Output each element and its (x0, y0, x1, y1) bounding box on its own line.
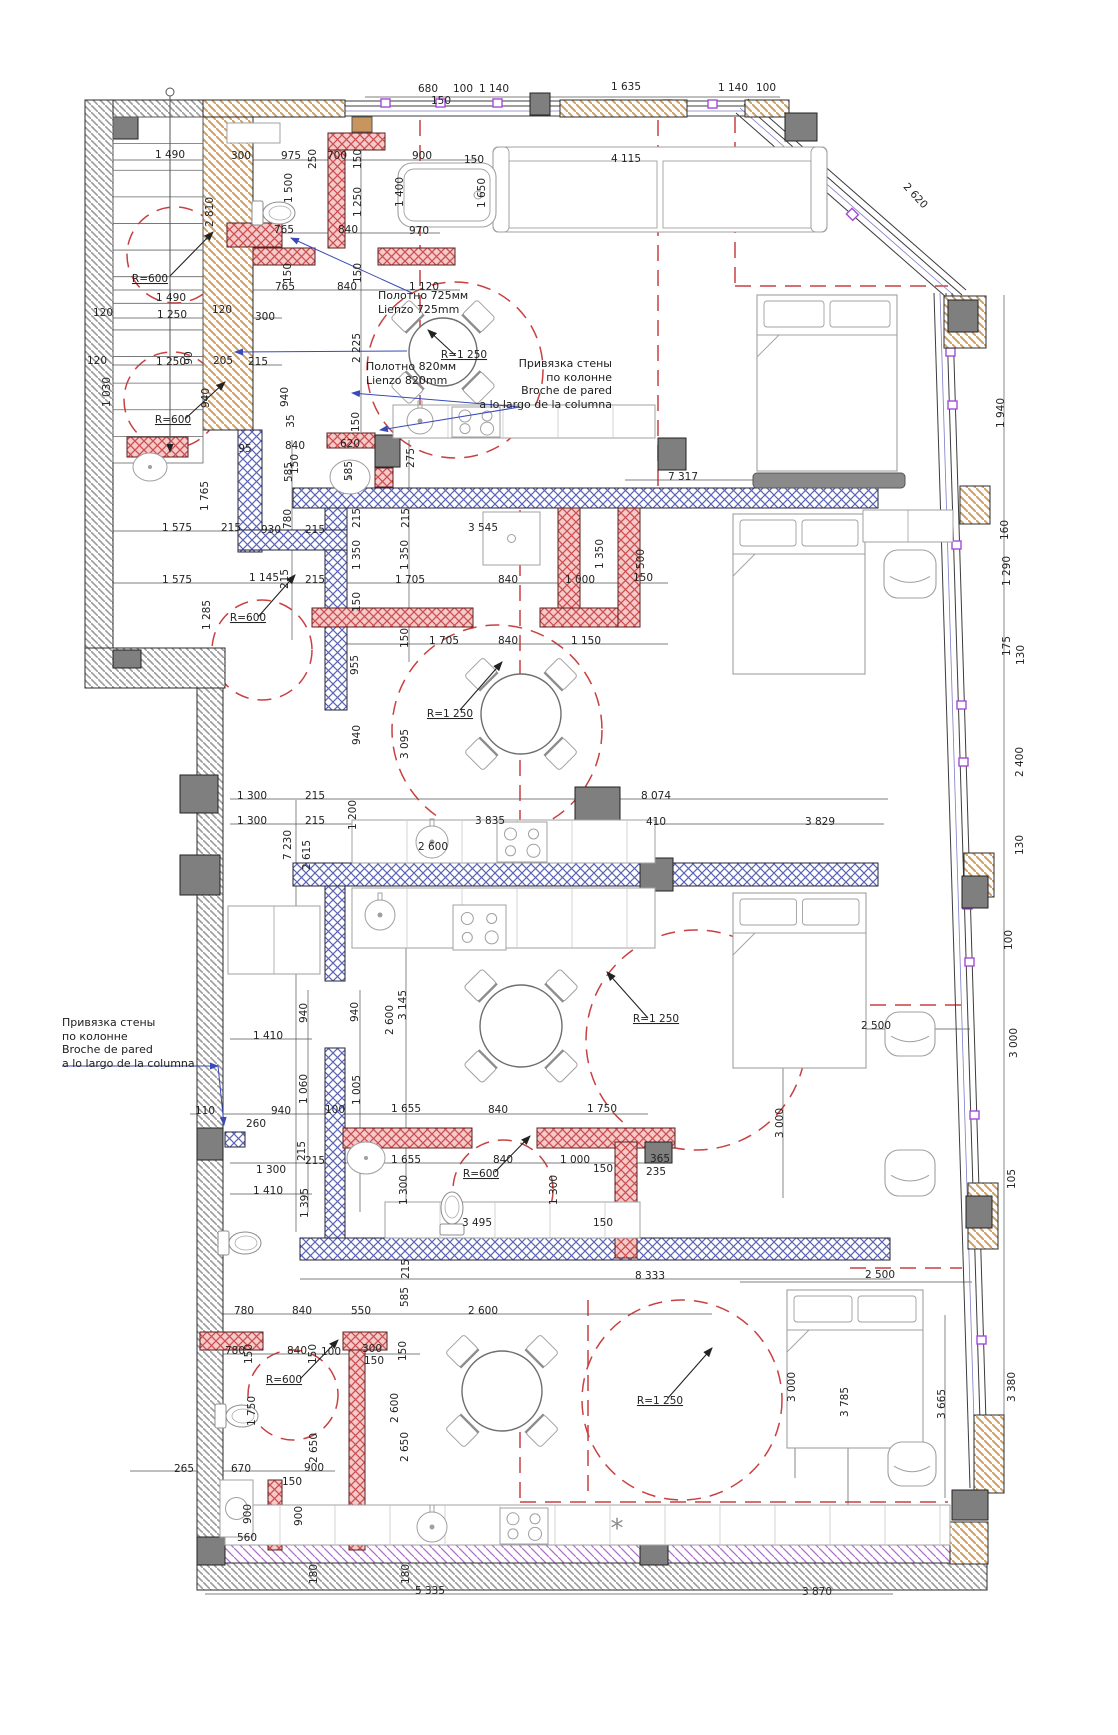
dim-label: 215 (400, 1259, 412, 1279)
dim-label: 3 000 (786, 1372, 798, 1402)
dim-label: 180 (308, 1564, 320, 1584)
dim-label: 160 (999, 520, 1011, 540)
wall-partition-existing (293, 488, 878, 508)
dining-table-icon (445, 1334, 558, 1447)
window-frame-tick (381, 99, 390, 107)
dim-label: 300 (362, 1343, 382, 1355)
dim-label: 940 (200, 388, 212, 408)
dim-label: 1 490 (156, 292, 186, 304)
dim-label: 2 600 (468, 1305, 498, 1317)
wall-masonry (560, 100, 687, 117)
dim-label: 1 250 (157, 309, 187, 321)
dim-label: 250 (307, 149, 319, 169)
wall-masonry (960, 486, 990, 524)
dim-label: 1 635 (611, 81, 641, 93)
dim-label: 150 (282, 263, 294, 283)
dim-label: 1 005 (351, 1075, 363, 1105)
window-frame-tick (965, 958, 974, 966)
dim-label: 1 705 (395, 574, 425, 586)
dim-label: 1 410 (253, 1185, 283, 1197)
radius-arrow (668, 1348, 712, 1398)
radius-label: R=1 250 (633, 1013, 679, 1025)
structural-column (530, 93, 550, 115)
dim-label: 150 (352, 149, 364, 169)
wall-partition-new (312, 608, 473, 627)
annotation-ru: по колонне (442, 371, 612, 385)
dresser-icon (863, 510, 953, 542)
sofa-icon (493, 147, 827, 232)
dim-label: 1 000 (560, 1154, 590, 1166)
turning-radius-circle (248, 1350, 338, 1440)
dim-label: 1 765 (199, 481, 211, 511)
dim-label: 215 (305, 574, 325, 586)
structural-column (966, 1196, 992, 1228)
window-frame-tick (946, 348, 955, 356)
dim-label: 180 (400, 1564, 412, 1584)
dim-label: 215 (305, 524, 325, 536)
dim-label: 150 (431, 95, 451, 107)
asterisk-mark: * (611, 1514, 624, 1544)
dim-label: 300 (231, 150, 251, 162)
dim-label: 2 600 (384, 1005, 396, 1035)
structural-column (180, 855, 220, 895)
window-frame-tick (959, 758, 968, 766)
dim-label: 840 (285, 440, 305, 452)
annotation-wall-tie-top: Привязка стены по колонне Broche de pare… (442, 357, 612, 411)
dim-label: 100 (453, 83, 473, 95)
wall-partition-new (378, 248, 455, 265)
dim-label: 1 140 (718, 82, 748, 94)
dim-label: 215 (221, 522, 241, 534)
dim-label: 1 395 (299, 1188, 311, 1218)
annotation-canvas-725: Полотно 725мм Lienzo 725mm (378, 289, 468, 316)
dim-label: 150 (352, 263, 364, 283)
dim-label: 3 495 (462, 1217, 492, 1229)
dim-label: 1 030 (101, 377, 113, 407)
dim-label: 150 (351, 592, 363, 612)
dim-label: 1 300 (237, 815, 267, 827)
dim-label: 670 (231, 1463, 251, 1475)
dim-label: 1 250 (352, 187, 364, 217)
floor-plan-canvas: 6801501001 1401 6351 1401002 6201 490300… (0, 0, 1118, 1735)
dim-label: 3 145 (397, 990, 409, 1020)
radius-label: R=600 (230, 612, 266, 624)
annotation-es: Lienzo 725mm (378, 303, 468, 317)
dim-label: 1 350 (351, 540, 363, 570)
structural-column (952, 1490, 988, 1520)
dim-label: 1 940 (995, 398, 1007, 428)
dim-label: 1 400 (394, 177, 406, 207)
stove-icon (497, 822, 547, 862)
dim-label: 840 (493, 1154, 513, 1166)
dim-label: 215 (400, 508, 412, 528)
dim-label: 1 655 (391, 1103, 421, 1115)
dim-label: 150 (633, 572, 653, 584)
dim-label: 3 000 (1008, 1028, 1020, 1058)
dim-label: 940 (271, 1105, 291, 1117)
dim-label: 150 (364, 1355, 384, 1367)
dim-label: 1 750 (587, 1103, 617, 1115)
dim-label: 620 (340, 438, 360, 450)
structural-column (658, 438, 686, 470)
dim-label: 900 (242, 1504, 254, 1524)
dim-label: 150 (397, 1341, 409, 1361)
dim-label: 1 350 (399, 540, 411, 570)
wall-partition-new (253, 248, 315, 265)
dim-label: 2 810 (204, 197, 216, 227)
dim-label: 4 115 (611, 153, 641, 165)
dim-label: 585 (399, 1287, 411, 1307)
dim-label: 150 (593, 1163, 613, 1175)
dim-label: 940 (298, 1003, 310, 1023)
dim-label: 1 290 (1001, 556, 1013, 586)
dim-label: 1 575 (162, 522, 192, 534)
structural-column (197, 1128, 223, 1160)
dim-label: 120 (93, 307, 113, 319)
furniture-layer (133, 117, 953, 1545)
wall-masonry (203, 100, 345, 117)
dim-label: 1 300 (256, 1164, 286, 1176)
dim-label: 3 380 (1006, 1372, 1018, 1402)
note-leader-line (235, 351, 407, 352)
dim-label: 970 (409, 225, 429, 237)
dim-label: 150 (464, 154, 484, 166)
dim-label: 95 (238, 443, 251, 455)
structural-column (180, 775, 218, 813)
dim-label: 765 (274, 224, 294, 236)
dim-label: 940 (279, 387, 291, 407)
dim-label: 365 (650, 1153, 670, 1165)
dining-table-icon (464, 969, 579, 1084)
wall-partition-existing (325, 1048, 345, 1238)
dim-label: 840 (488, 1104, 508, 1116)
dim-label: 150 (350, 412, 362, 432)
balcony-glazing-band (225, 1545, 952, 1565)
radius-label: R=600 (266, 1374, 302, 1386)
stair-path-start (166, 88, 174, 96)
boiler-icon (352, 117, 372, 132)
stove-icon (500, 1508, 548, 1544)
washbasin-icon (133, 453, 167, 481)
dim-label: 3 835 (475, 815, 505, 827)
toilet-icon (252, 201, 295, 225)
floor-plan-drawing: 6801501001 1401 6351 1401002 6201 490300… (0, 0, 1118, 1735)
dim-label: 265 (174, 1463, 194, 1475)
wall-partition-existing (293, 863, 878, 886)
dim-label: 585 (343, 461, 355, 481)
dim-label: 585 (283, 462, 295, 482)
annotation-ru: Полотно 725мм (378, 289, 468, 303)
dim-label: 2 600 (389, 1393, 401, 1423)
dim-label: 780 (282, 509, 294, 529)
dim-label: 840 (287, 1345, 307, 1357)
structural-column (375, 435, 400, 467)
structural-column (962, 876, 988, 908)
toilet-icon (218, 1231, 261, 1255)
dim-label: 3 095 (399, 729, 411, 759)
bed-icon (787, 1290, 923, 1448)
dim-label: 840 (498, 635, 518, 647)
wall-masonry (203, 117, 253, 430)
dim-label: 7 317 (668, 471, 698, 483)
annotation-ru: Привязка стены (442, 357, 612, 371)
dim-label: 2 650 (399, 1432, 411, 1462)
dim-label: 3 000 (774, 1108, 786, 1138)
dim-label: 840 (292, 1305, 312, 1317)
wall-partition-existing (325, 886, 345, 981)
dim-label: 5 335 (415, 1585, 445, 1597)
dim-label: 100 (321, 1346, 341, 1358)
dim-label: 955 (349, 655, 361, 675)
window-frame-tick (970, 1111, 979, 1119)
dim-label: 275 (405, 448, 417, 468)
dim-label: 680 (418, 83, 438, 95)
dim-label: 2 620 (901, 181, 930, 211)
dim-label: 150 (593, 1217, 613, 1229)
dim-label: 900 (293, 1506, 305, 1526)
dim-label: 3 870 (802, 1586, 832, 1598)
dim-label: 1 300 (548, 1175, 560, 1205)
wardrobe-icon (228, 906, 320, 974)
dim-label: 215 (351, 508, 363, 528)
dim-label: 100 (1003, 930, 1015, 950)
structural-column (113, 650, 141, 668)
dim-label: 3 785 (839, 1387, 851, 1417)
window-frame-tick (977, 1336, 986, 1344)
dim-label: 1 250 (156, 356, 186, 368)
toilet-icon (440, 1192, 464, 1235)
dim-label: 215 (305, 1155, 325, 1167)
dim-label: 700 (327, 150, 347, 162)
armchair-icon (885, 1150, 935, 1196)
dim-label: 205 (213, 355, 233, 367)
dim-label: 150 (282, 1476, 302, 1488)
dim-label: 560 (237, 1532, 257, 1544)
dim-label: 1 750 (246, 1396, 258, 1426)
wall-partition-new (375, 468, 393, 487)
dim-label: 975 (281, 150, 301, 162)
kitchen-counter (225, 1505, 950, 1545)
bed-icon (757, 295, 897, 471)
bench-icon (753, 473, 905, 488)
bed-icon (733, 893, 866, 1068)
dim-label: 1 060 (298, 1074, 310, 1104)
dim-label: 1 150 (571, 635, 601, 647)
wall-exterior (85, 648, 225, 688)
radius-arrow (607, 972, 648, 1018)
dim-label: 8 333 (635, 1270, 665, 1282)
wall-partition-existing (300, 1238, 890, 1260)
structural-column (197, 1537, 225, 1565)
dim-label: 3 545 (468, 522, 498, 534)
dim-label: 1 145 (249, 572, 279, 584)
dim-label: 1 200 (347, 800, 359, 830)
dim-label: 120 (212, 304, 232, 316)
dim-label: 150 (399, 628, 411, 648)
dim-label: 235 (646, 1166, 666, 1178)
annotation-es: Broche de pared (62, 1043, 195, 1057)
radius-label: R=1 250 (637, 1395, 683, 1407)
window-frame-tick (493, 99, 502, 107)
dim-label: 1 300 (237, 790, 267, 802)
dim-label: 215 (248, 356, 268, 368)
window-frame-tick (957, 701, 966, 709)
dim-label: 1 650 (476, 178, 488, 208)
dim-label: 8 074 (641, 790, 671, 802)
dim-label: 3 665 (936, 1389, 948, 1419)
annotation-es: a lo largo de la columna (62, 1057, 195, 1071)
armchair-icon (884, 550, 936, 598)
wall-masonry (745, 100, 789, 117)
dim-label: 215 (305, 790, 325, 802)
annotation-es: Broche de pared (442, 384, 612, 398)
bed-icon (733, 514, 865, 674)
shelf-icon (227, 123, 280, 143)
wall-partition-new (615, 1142, 637, 1258)
dim-label: 2 225 (351, 333, 363, 363)
dining-table-icon (464, 657, 577, 770)
dim-label: 940 (349, 1002, 361, 1022)
dim-label: 900 (412, 150, 432, 162)
annotation-es: a lo largo de la columna (442, 398, 612, 412)
wall-partition-new (558, 508, 580, 608)
wall-masonry (950, 1522, 988, 1564)
dim-label: 260 (246, 1118, 266, 1130)
dim-label: 1 140 (479, 83, 509, 95)
dim-label: 2 600 (418, 841, 448, 853)
radius-label: R=600 (132, 273, 168, 285)
radius-label: R=600 (463, 1168, 499, 1180)
dim-label: 2 650 (308, 1433, 320, 1463)
dim-label: 410 (646, 816, 666, 828)
dim-label: 900 (304, 1462, 324, 1474)
dim-label: 1 705 (429, 635, 459, 647)
wall-masonry (974, 1415, 1004, 1493)
dim-label: 500 (635, 549, 647, 569)
dim-label: 120 (87, 355, 107, 367)
window-frame-tick (948, 401, 957, 409)
dim-label: 100 (325, 1104, 345, 1116)
dim-label: 100 (756, 82, 776, 94)
wall-partition-existing (225, 1132, 245, 1147)
dim-label: 780 (234, 1305, 254, 1317)
dim-label: 840 (338, 224, 358, 236)
washbasin-icon (347, 1142, 385, 1174)
dim-label: 215 (279, 569, 291, 589)
dim-label: 35 (285, 414, 297, 427)
dim-label: 110 (195, 1105, 215, 1117)
annotation-wall-tie-left: Привязка стены по колонне Broche de pare… (62, 1016, 195, 1070)
dim-label: 130 (1014, 835, 1026, 855)
radius-label: R=1 250 (427, 708, 473, 720)
dim-label: 2 400 (1014, 747, 1026, 777)
dim-label: 2 615 (301, 840, 313, 870)
window-frame-tick (708, 100, 717, 108)
dim-label: 1 500 (283, 173, 295, 203)
dim-label: 2 500 (865, 1269, 895, 1281)
shower-icon (483, 512, 540, 565)
dim-label: 930 (261, 524, 281, 536)
dim-label: 1 575 (162, 574, 192, 586)
structural-column (785, 113, 817, 141)
dim-label: 105 (1006, 1169, 1018, 1189)
dim-label: 1 410 (253, 1030, 283, 1042)
stove-icon (453, 905, 506, 950)
dim-label: 1 490 (155, 149, 185, 161)
structural-column (640, 1543, 668, 1565)
dim-label: 1 300 (398, 1175, 410, 1205)
dim-label: 7 230 (282, 830, 294, 860)
structural-column (948, 300, 978, 332)
annotation-ru: Привязка стены (62, 1016, 195, 1030)
wall-partition-new (328, 133, 385, 150)
dim-label: 150 (307, 1344, 319, 1364)
structural-column (113, 117, 138, 139)
dim-label: 130 (1015, 645, 1027, 665)
dim-label: 550 (351, 1305, 371, 1317)
armchair-icon (885, 1012, 935, 1056)
dim-label: 215 (305, 815, 325, 827)
annotation-ru: по колонне (62, 1030, 195, 1044)
dim-label: 1 000 (565, 574, 595, 586)
dim-label: 940 (351, 725, 363, 745)
dim-label: 1 285 (201, 600, 213, 630)
dim-label: 175 (1001, 636, 1013, 656)
dim-label: 3 829 (805, 816, 835, 828)
dim-label: 150 (243, 1344, 255, 1364)
dim-label: 1 655 (391, 1154, 421, 1166)
dim-label: 1 350 (594, 539, 606, 569)
armchair-icon (888, 1442, 936, 1486)
dim-label: 2 500 (861, 1020, 891, 1032)
wall-partition-existing (238, 530, 347, 550)
dim-label: 90 (183, 351, 195, 364)
radius-label: R=600 (155, 414, 191, 426)
dim-label: 840 (498, 574, 518, 586)
dim-label: 300 (255, 311, 275, 323)
